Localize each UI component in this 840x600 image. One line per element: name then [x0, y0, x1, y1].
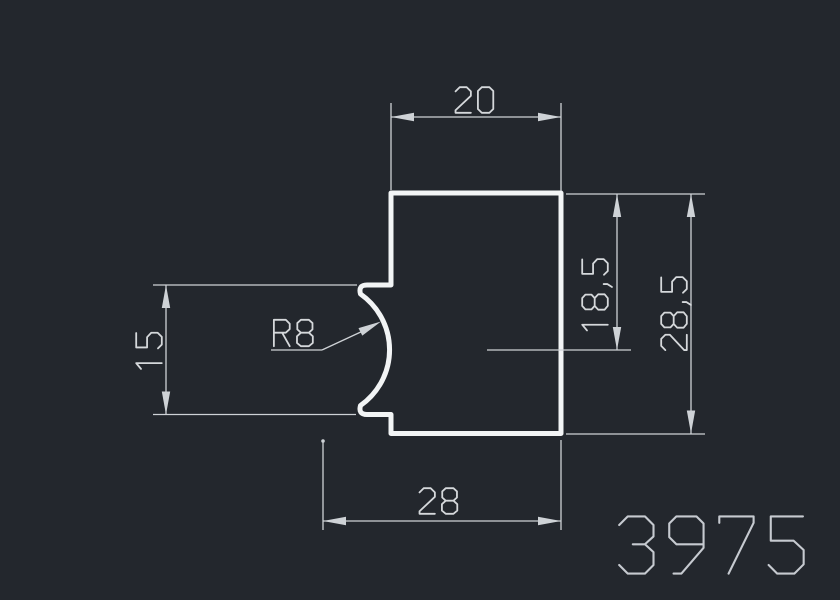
arrowhead-right — [538, 517, 561, 525]
arrowhead-up — [162, 285, 170, 308]
dimension-label-bottom-width: 28 — [420, 488, 458, 514]
leader-line — [322, 331, 364, 351]
arrowhead-down — [613, 327, 621, 350]
dimension-bottom-width[interactable]: 28 — [321, 439, 561, 530]
arrowhead-down — [687, 411, 695, 434]
radius-leader[interactable]: R8 — [271, 320, 381, 350]
arrowhead-down — [162, 392, 170, 415]
arrowhead-left — [391, 113, 414, 121]
arrowhead-up — [613, 194, 621, 217]
arrowhead-leader — [359, 322, 382, 336]
dimension-label-left-notch: 15 — [136, 333, 162, 369]
dimension-top-width[interactable]: 20 — [391, 87, 561, 191]
dimension-label-top-width: 20 — [456, 87, 494, 113]
dimension-label-right-inner: 18,5 — [582, 259, 612, 330]
stroke-text-glyphs — [619, 516, 803, 573]
arrowhead-up — [687, 194, 695, 217]
part-outline[interactable] — [360, 193, 561, 434]
part-number[interactable]: 3975 — [619, 516, 803, 573]
cad-drawing-canvas[interactable]: 20 18,5 28,5 — [0, 0, 840, 600]
dimension-right-outer-height[interactable]: 28,5 — [566, 194, 705, 434]
arrowhead-left — [323, 517, 346, 525]
arrowhead-right — [538, 113, 561, 121]
dimension-label-right-outer: 28,5 — [661, 277, 691, 350]
radius-label: R8 — [274, 320, 313, 346]
